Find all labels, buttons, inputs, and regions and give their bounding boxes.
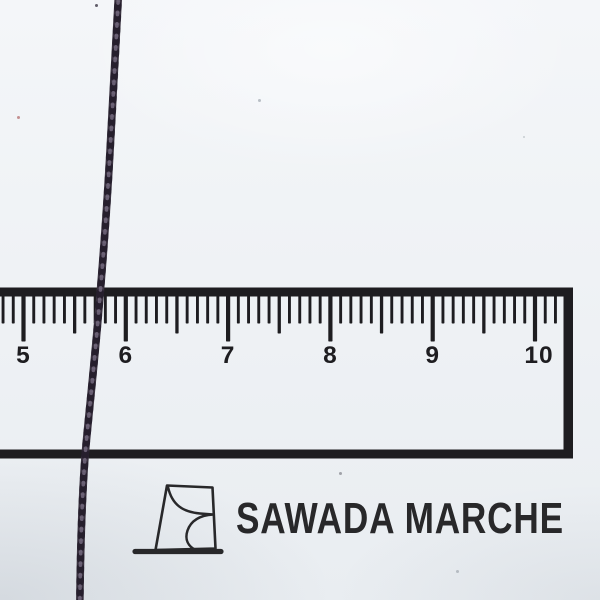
ruler-number: 7 — [221, 342, 236, 369]
dust-speck — [523, 136, 525, 138]
ruler-tick — [155, 294, 158, 324]
ruler-tick — [12, 294, 15, 324]
ruler-tick — [43, 294, 46, 324]
ruler-tick — [380, 294, 383, 334]
dust-speck — [95, 4, 98, 7]
ruler-tick — [237, 294, 240, 324]
ruler-tick — [339, 294, 342, 324]
ruler-tick — [32, 294, 35, 324]
ruler-tick — [309, 294, 312, 324]
ruler-number: 6 — [118, 342, 133, 369]
ruler-number: 8 — [323, 342, 338, 369]
ruler-tick — [247, 294, 250, 324]
ruler-number: 9 — [425, 342, 440, 369]
ruler-tick — [135, 294, 138, 324]
ruler-tick — [493, 294, 496, 324]
ruler-tick — [431, 294, 435, 342]
dust-speck — [339, 472, 342, 475]
ruler-tick — [452, 294, 455, 324]
ruler-tick — [523, 294, 526, 324]
ruler-tick — [401, 294, 404, 324]
ruler-tick — [257, 294, 260, 324]
ruler-tick — [472, 294, 475, 324]
ruler-number: 10 — [524, 342, 553, 369]
ruler-tick — [554, 294, 557, 324]
ruler-tick — [360, 294, 363, 324]
ruler-tick — [226, 294, 230, 342]
dust-speck — [258, 99, 261, 102]
ruler-tick — [319, 294, 322, 324]
ruler-tick — [503, 294, 506, 324]
ruler-tick — [206, 294, 209, 324]
ruler-tick — [63, 294, 66, 324]
ruler-tick — [21, 294, 25, 342]
ruler-tick — [278, 294, 281, 334]
ruler-tick — [442, 294, 445, 324]
dust-speck — [456, 570, 459, 573]
ruler-tick — [2, 294, 5, 324]
ruler-tick — [288, 294, 291, 324]
ruler-tick — [83, 294, 86, 324]
ruler-tick — [349, 294, 352, 324]
ruler-tick — [104, 294, 107, 324]
photo-thread-on-ruler: 5678910 SAWADA MARCHE — [0, 0, 600, 600]
ruler-tick — [328, 294, 332, 342]
ruler-tick — [462, 294, 465, 324]
ruler-tick — [411, 294, 414, 324]
ruler-tick — [544, 294, 547, 324]
ruler-tick — [298, 294, 301, 324]
dust-speck — [17, 116, 20, 119]
sawada-marche-logo-mark — [135, 486, 221, 552]
ruler-tick — [268, 294, 271, 324]
logo-s-curve — [168, 487, 213, 551]
ruler-tick — [513, 294, 516, 324]
ruler-right-edge — [564, 288, 574, 459]
ruler-tick — [421, 294, 424, 324]
ruler-tick — [175, 294, 178, 334]
ruler-ticks — [2, 294, 557, 342]
ruler-number: 5 — [16, 342, 31, 369]
ruler-tick — [53, 294, 56, 324]
ruler-tick — [390, 294, 393, 324]
ruler-tick — [196, 294, 199, 324]
ruler-tick — [165, 294, 168, 324]
brand-name: SAWADA MARCHE — [236, 497, 564, 541]
ruler-tick — [124, 294, 128, 342]
ruler-tick — [533, 294, 537, 342]
ruler-tick — [186, 294, 189, 324]
ruler-tick — [370, 294, 373, 324]
ruler-tick — [73, 294, 76, 334]
ruler-tick — [114, 294, 117, 324]
ruler-tick — [482, 294, 485, 334]
ruler-tick — [216, 294, 219, 324]
ruler-tick — [145, 294, 148, 324]
